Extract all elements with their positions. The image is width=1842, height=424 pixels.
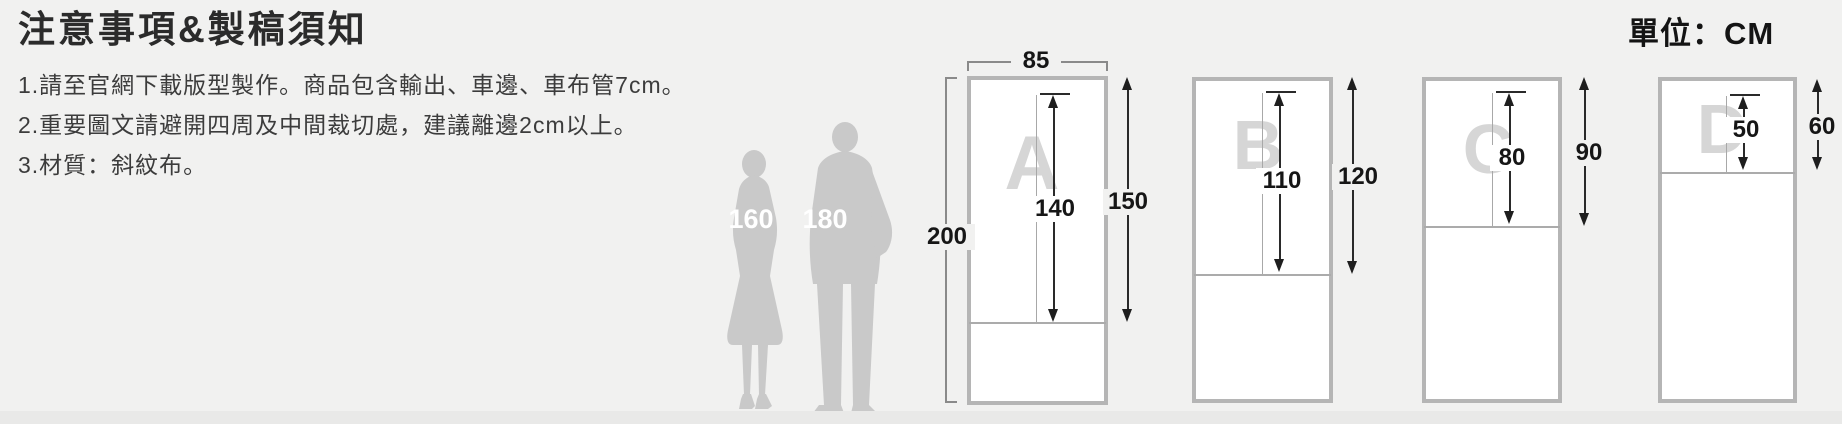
arrowhead-down <box>1347 261 1357 274</box>
arrowhead-down <box>1812 157 1822 170</box>
diagram-c-fold-line <box>1424 226 1560 228</box>
arrowhead-up <box>1738 96 1748 109</box>
arrowhead-up <box>1048 95 1058 108</box>
diagram-a-letter: A <box>992 126 1072 202</box>
diagram-b-outer-dim-label: 120 <box>1332 164 1384 190</box>
diagram-a-total-bracket-end <box>945 77 957 79</box>
arrowhead-up <box>1579 77 1589 90</box>
notes-list: 1.請至官網下載版型製作。商品包含輸出、車邊、車布管7cm。 2.重要圖文請避開… <box>18 65 778 185</box>
diagram-c-outer-dim-label: 90 <box>1567 140 1611 166</box>
arrowhead-down <box>1738 157 1748 170</box>
diagram-b-fold-line <box>1194 274 1331 276</box>
arrowhead-up <box>1122 77 1132 90</box>
unit-label: 單位：CM <box>1628 8 1774 53</box>
note-line-3: 3.材質：斜紋布。 <box>18 145 778 185</box>
people-silhouette-graphic <box>705 118 905 414</box>
diagram-d-inner-dim-label: 50 <box>1724 117 1768 143</box>
diagram-a-outer-dim-label: 150 <box>1103 189 1153 215</box>
diagram-a-total-height-label: 200 <box>919 224 975 250</box>
spec-infographic: 注意事項&製稿須知 1.請至官網下載版型製作。商品包含輸出、車邊、車布管7cm。… <box>0 0 1842 424</box>
arrowhead-up <box>1812 79 1822 92</box>
diagram-d-fold-line <box>1660 172 1795 174</box>
arrowhead-down <box>1579 213 1589 226</box>
arrowhead-down <box>1274 259 1284 272</box>
diagram-a-fold-line <box>969 322 1106 324</box>
diagram-b-inner-dim-label: 110 <box>1256 168 1308 194</box>
note-line-2: 2.重要圖文請避開四周及中間裁切處，建議離邊2cm以上。 <box>18 105 778 145</box>
diagram-a-inner-dim-label: 140 <box>1030 196 1080 222</box>
scale-figures: 160 180 <box>705 118 905 414</box>
arrowhead-down <box>1122 309 1132 322</box>
ground-band <box>0 411 1842 424</box>
diagram-a-width-bracket-end <box>1106 61 1108 71</box>
diagram-d-outer-dim-label: 60 <box>1800 114 1842 140</box>
arrowhead-up <box>1504 93 1514 106</box>
arrowhead-down <box>1048 309 1058 322</box>
male-height-label: 180 <box>801 206 849 232</box>
arrowhead-up <box>1347 77 1357 90</box>
arrowhead-up <box>1274 93 1284 106</box>
note-line-1: 1.請至官網下載版型製作。商品包含輸出、車邊、車布管7cm。 <box>18 65 778 105</box>
arrowhead-down <box>1504 211 1514 224</box>
diagram-a-width-label: 85 <box>1011 48 1061 74</box>
notes-title: 注意事項&製稿須知 <box>18 8 778 52</box>
diagram-a-width-bracket-end <box>967 61 969 71</box>
diagram-a-total-bracket-end <box>945 401 957 403</box>
notes-section: 注意事項&製稿須知 1.請至官網下載版型製作。商品包含輸出、車邊、車布管7cm。… <box>18 8 778 185</box>
diagram-c-inner-dim-label: 80 <box>1490 145 1534 171</box>
female-height-label: 160 <box>727 206 775 232</box>
